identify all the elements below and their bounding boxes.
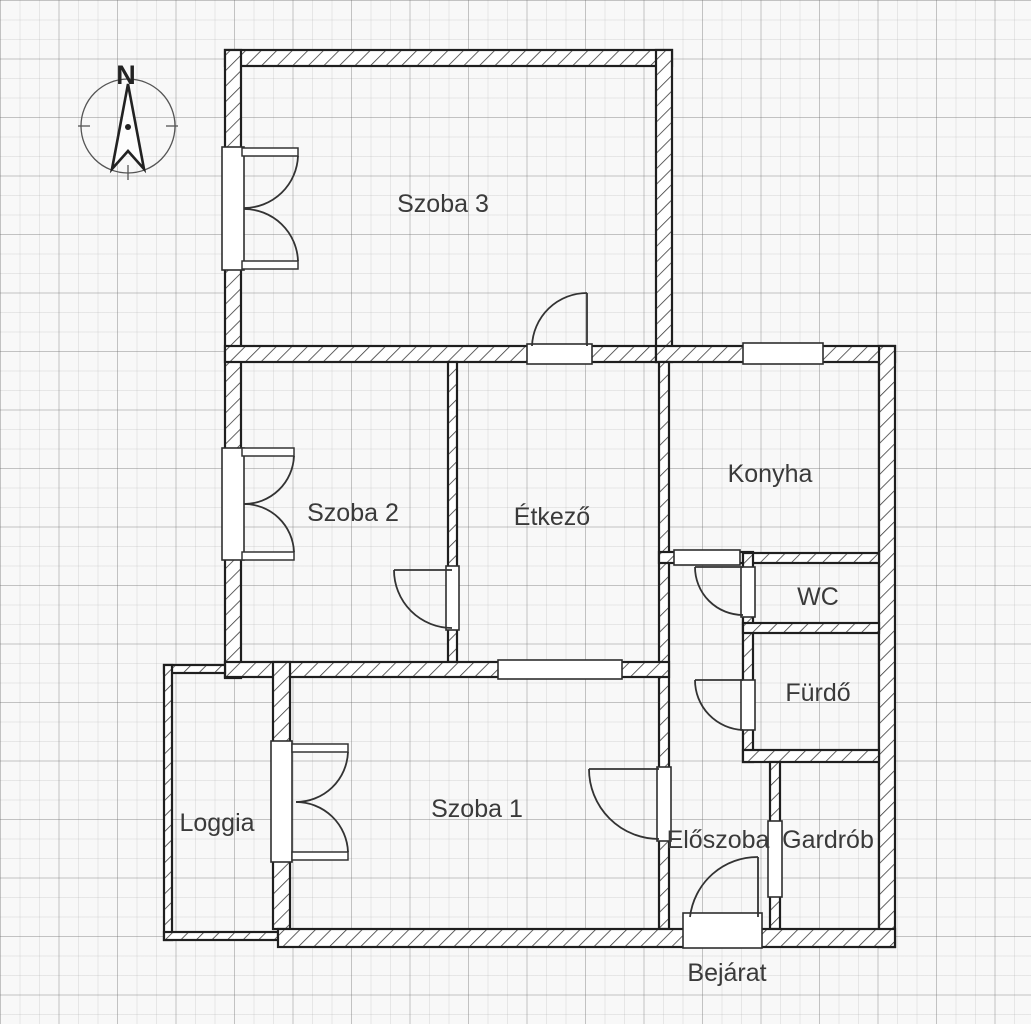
door-arc-szoba1: [589, 769, 659, 839]
door-arc-szoba3: [532, 293, 587, 346]
wall-szoba3-right: [656, 50, 672, 362]
wall-furdo-bottom: [743, 750, 879, 762]
floorplan-canvas: N Szoba 3 Szoba 2 Étkező Konyha WC Fürdő…: [0, 0, 1031, 1024]
window-arc: [296, 802, 348, 852]
door-arc-entrance: [690, 857, 758, 917]
window-szoba2-casement: [242, 448, 294, 560]
wall-right-exterior: [879, 346, 895, 947]
room-label-szoba-1: Szoba 1: [431, 795, 523, 823]
window-loggia-casement: [292, 744, 348, 860]
window-arc: [244, 456, 294, 504]
window-leaf: [292, 852, 348, 860]
opening-konyha-entry: [674, 550, 740, 565]
door-entrance: [690, 857, 758, 917]
door-opening-wc: [741, 567, 755, 617]
door-furdo: [695, 680, 743, 730]
wall-szoba3-top: [225, 50, 672, 66]
wall-wc-bottom: [743, 623, 879, 633]
room-label-wc: WC: [797, 583, 839, 611]
room-label-etkezo: Étkező: [514, 502, 590, 531]
compass-center-dot: [125, 124, 131, 130]
compass-north-letter: N: [116, 60, 136, 90]
window-arc: [244, 156, 298, 208]
floorplan-drawing: N Szoba 3 Szoba 2 Étkező Konyha WC Fürdő…: [0, 0, 1031, 1024]
window-szoba3-sill: [222, 147, 244, 270]
door-szoba1: [589, 769, 659, 839]
window-leaf: [292, 744, 348, 752]
door-opening-szoba2: [446, 566, 459, 630]
window-arc: [244, 504, 294, 552]
window-leaf: [242, 148, 298, 156]
door-arc-szoba2: [394, 570, 452, 628]
window-szoba3-casement: [242, 148, 298, 269]
door-szoba2: [394, 570, 452, 628]
window-loggia-sill: [271, 741, 292, 862]
door-szoba3: [532, 293, 587, 346]
entrance-label: Bejárat: [687, 959, 766, 987]
wall-left-exterior: [225, 50, 241, 678]
wall-bottom-exterior: [278, 929, 895, 947]
window-szoba2-sill: [222, 448, 244, 560]
door-threshold-szoba3: [527, 344, 592, 364]
wall-wc-top: [743, 553, 879, 563]
door-arc-furdo: [695, 680, 743, 730]
room-label-gardrob: Gardrób: [782, 826, 874, 854]
wall-loggia-top: [164, 665, 225, 673]
wall-loggia-bottom: [164, 932, 278, 940]
room-label-szoba-3: Szoba 3: [397, 190, 489, 218]
window-arc: [296, 752, 348, 802]
room-label-konyha: Konyha: [728, 460, 813, 488]
north-compass: N: [78, 60, 178, 180]
window-leaf: [242, 552, 294, 560]
doorway-gardrob: [768, 821, 782, 897]
window-leaf: [242, 261, 298, 269]
door-opening-furdo: [741, 680, 755, 730]
room-label-furdo: Fürdő: [785, 679, 850, 707]
room-label-loggia: Loggia: [179, 809, 254, 837]
room-label-szoba-2: Szoba 2: [307, 499, 399, 527]
door-arc-wc: [695, 567, 743, 615]
entrance-threshold: [683, 913, 762, 948]
wall-loggia-left: [164, 665, 172, 940]
passage-etkezo-szoba1: [498, 660, 622, 679]
window-arc: [244, 209, 298, 261]
window-leaf: [242, 448, 294, 456]
room-label-eloszoba: Előszoba: [667, 826, 770, 854]
window-konyha: [743, 343, 823, 364]
door-wc: [695, 567, 743, 615]
